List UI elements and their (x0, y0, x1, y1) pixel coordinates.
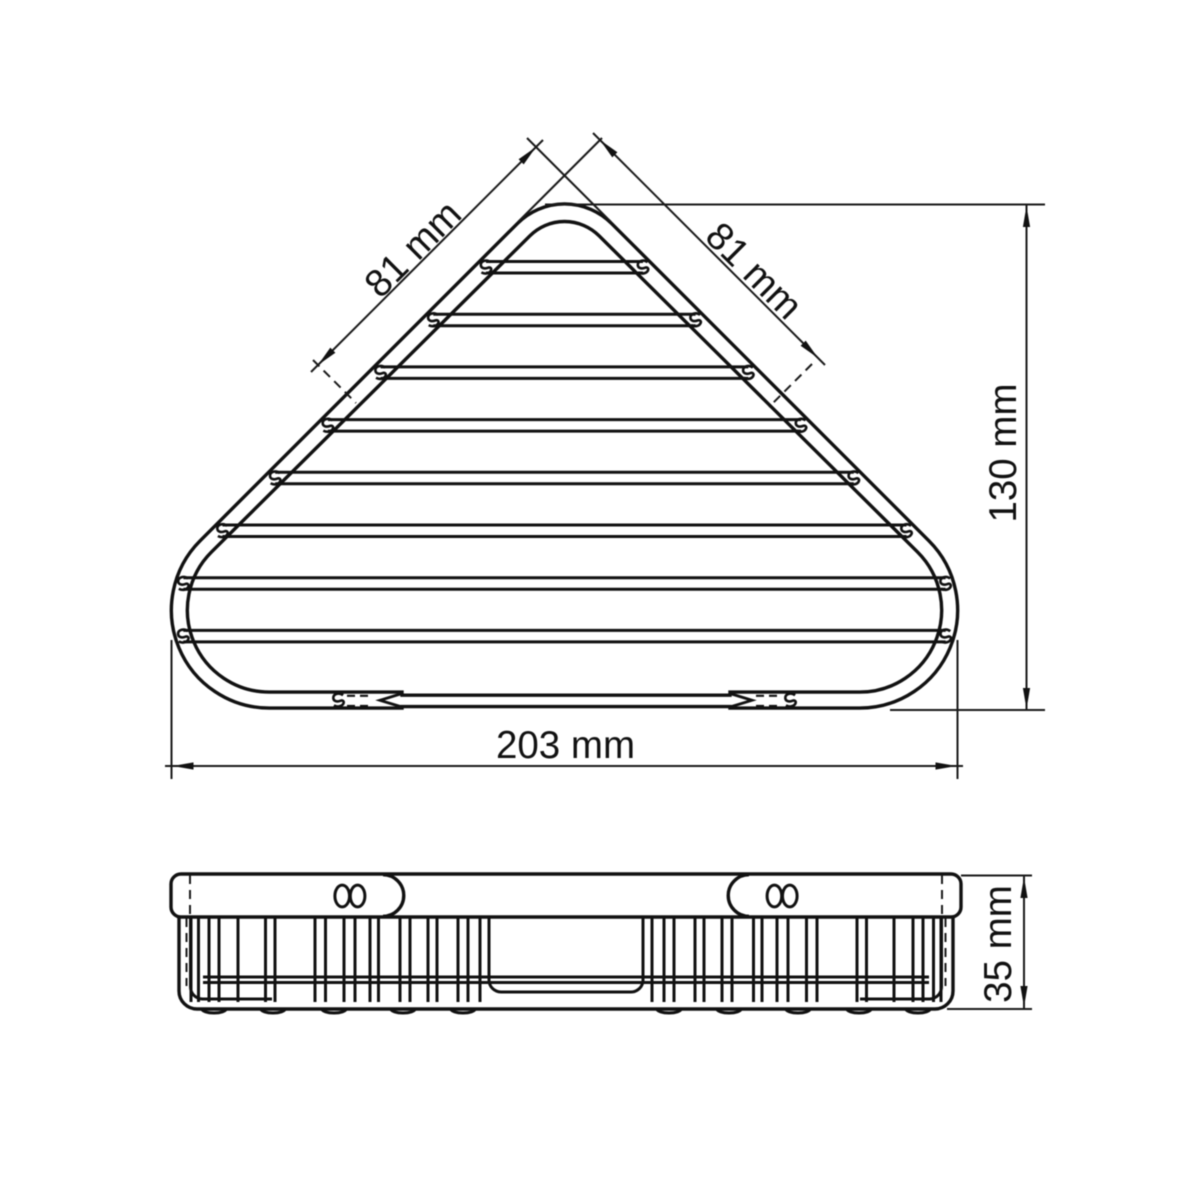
svg-text:130 mm: 130 mm (982, 383, 1025, 522)
svg-text:35 mm: 35 mm (977, 885, 1020, 1003)
svg-text:203 mm: 203 mm (496, 724, 635, 767)
